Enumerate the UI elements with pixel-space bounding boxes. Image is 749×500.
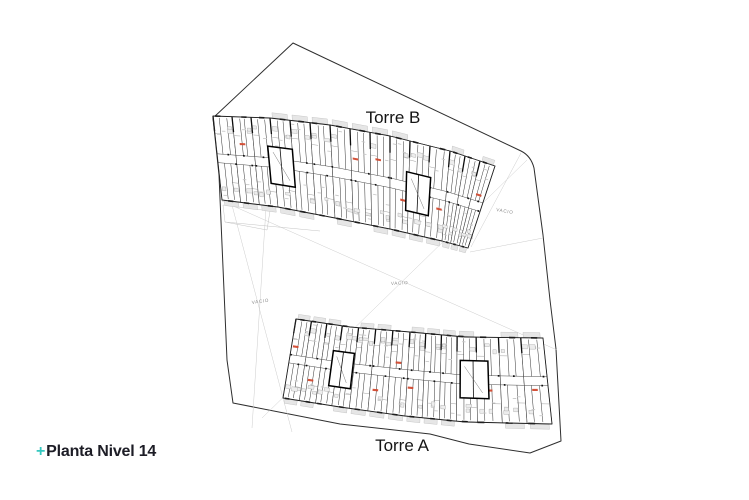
column [368,173,370,175]
furniture [418,405,422,408]
furniture [493,350,496,354]
furniture [489,409,493,413]
stair-core [460,360,489,398]
annotation-smudge [458,351,462,352]
column [429,371,431,373]
furniture [291,129,297,133]
furniture [501,349,505,352]
column [498,375,500,377]
furniture [420,343,425,347]
plus-icon: + [36,443,45,461]
annotation-smudge [492,403,496,404]
balcony [523,332,540,337]
column [306,365,308,367]
furniture [392,341,398,345]
column [407,378,409,380]
furniture [336,201,340,206]
furniture [335,336,340,341]
unit-slice [350,129,372,226]
torre-b-label: Torre B [366,108,421,127]
heavy-wall [425,333,426,348]
balcony [505,423,524,428]
furniture [400,403,404,408]
furniture [305,135,310,139]
column [388,177,390,179]
unit-slices [213,116,495,248]
furniture [504,411,510,415]
furniture [381,337,385,341]
column [313,163,315,165]
balcony [501,332,518,337]
furniture [442,344,445,347]
column [263,156,265,158]
heavy-wall [409,332,410,347]
vacio-label-left: VACIO [251,298,269,305]
column [434,380,436,382]
column [227,154,229,156]
column [411,369,413,371]
furniture [305,333,310,337]
column [306,172,308,174]
annotation-smudge [259,191,263,192]
furniture [359,337,363,340]
vacio-label-center: VACIO [391,280,409,286]
annotation-smudge [537,348,541,349]
column [331,166,333,168]
column [513,375,515,377]
annotation-smudge [457,415,461,416]
column [399,368,401,370]
furniture [325,197,328,200]
column [541,385,543,387]
column [373,365,375,367]
furniture [318,390,323,395]
furniture [285,192,290,195]
unit-tag [240,143,246,145]
furniture [404,153,408,158]
furniture [272,126,277,131]
furniture [370,143,376,148]
furniture [369,341,373,346]
annotation-smudge [223,195,227,196]
furniture [386,215,389,220]
torre-a-label: Torre A [375,436,430,455]
furniture [466,404,472,407]
column [350,179,352,181]
furniture [234,188,238,191]
column [326,175,328,177]
furniture [254,192,258,195]
plan-title: + Planta Nivel 14 [36,443,156,461]
annotation-smudge [532,409,536,410]
furniture [285,385,291,389]
furniture [308,385,314,389]
furniture [259,193,263,197]
annotation-smudge [258,181,262,182]
furniture [222,187,226,191]
furniture [504,407,508,411]
construction-line [228,190,292,432]
annotation-smudge [513,398,517,399]
column [375,184,377,186]
column [451,382,453,384]
furniture [252,126,256,129]
column [504,384,506,386]
column [251,165,253,167]
furniture [469,347,475,351]
column [403,377,405,379]
balcony [443,330,455,336]
annotation-smudge [517,396,521,397]
annotation-smudge [539,415,543,416]
furniture [227,129,233,133]
furniture [529,345,535,350]
furniture [410,339,414,344]
balcony [530,424,549,429]
heavy-wall [498,337,499,352]
torre-b-plan [213,113,495,253]
furniture [380,211,384,215]
column [316,358,318,360]
furniture [324,388,330,392]
heavy-wall [330,125,331,142]
column [355,372,357,374]
furniture [291,387,297,392]
furniture [522,345,528,349]
floor-plan-canvas: Torre B Torre A VACIO VACIO VACIO [0,0,749,500]
furniture [398,213,402,217]
column [355,180,357,182]
annotation-smudge [222,131,226,132]
furniture [334,394,338,398]
furniture [436,344,441,348]
column [543,376,545,378]
torre-a-plan [283,314,552,429]
plan-title-text: Planta Nivel 14 [46,443,156,461]
column [255,165,257,167]
annotation-smudge [504,407,508,408]
furniture [267,190,271,194]
annotation-smudge [483,413,487,414]
annotation-smudge [263,138,267,139]
heavy-wall [350,129,351,146]
furniture [312,391,317,394]
furniture [467,229,471,233]
furniture [327,333,330,336]
floor-plan-page: Torre B Torre A VACIO VACIO VACIO + Plan… [0,0,749,500]
column [385,375,387,377]
vacio-label-right: VACIO [496,207,514,215]
furniture [363,338,369,341]
column [442,372,444,374]
annotation-smudge [217,134,221,135]
column [306,162,308,164]
furniture [431,402,435,407]
furniture [247,188,253,193]
furniture [513,408,518,412]
annotation-smudge [242,129,246,130]
furniture [302,388,306,391]
furniture [485,344,490,347]
column [369,365,371,367]
column [325,368,327,370]
furniture [529,410,534,414]
furniture [441,405,446,409]
furniture [312,135,317,138]
balcony [428,328,440,334]
furniture [420,346,425,350]
furniture [466,409,470,412]
column [297,363,299,365]
column [235,163,237,165]
construction-line [470,238,543,252]
furniture [287,135,290,139]
annotation-smudge [243,179,247,180]
annotation-smudge [462,341,466,342]
annotation-smudge [246,184,250,185]
furniture [247,128,251,131]
column [243,155,245,157]
furniture [346,335,352,340]
furniture [324,138,330,142]
unit-tag [532,389,538,391]
furniture [386,342,391,346]
